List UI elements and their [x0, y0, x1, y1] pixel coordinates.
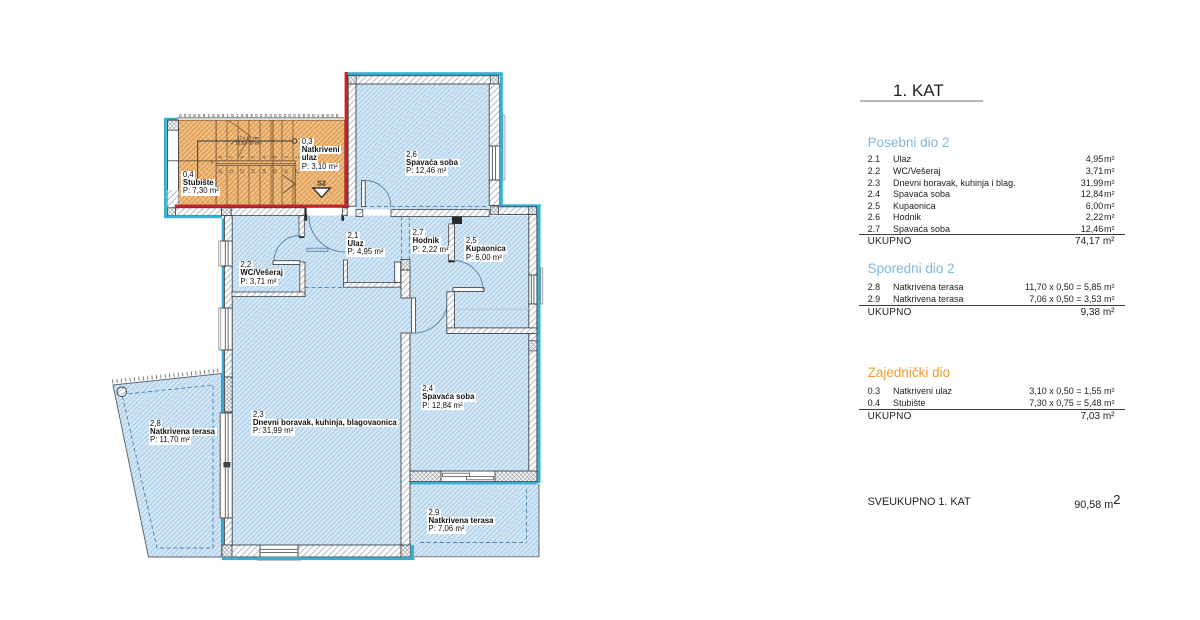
svg-text:000888188815188800000008008881: 0008881888151888000000080088815888 — [179, 113, 341, 118]
svg-text:16,5 x 30 cm: 16,5 x 30 cm — [236, 140, 261, 145]
